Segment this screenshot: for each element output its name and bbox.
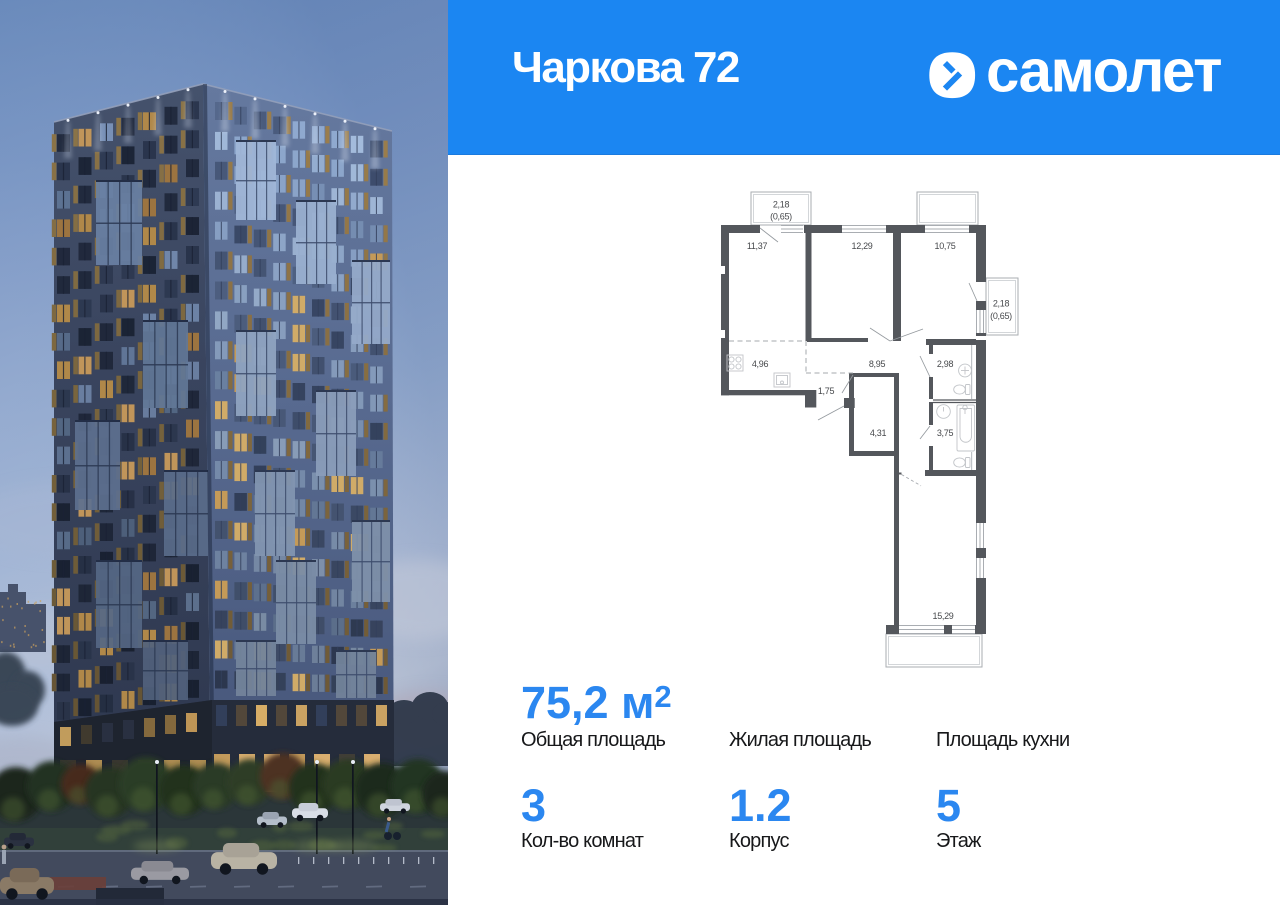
svg-text:11,37: 11,37 (747, 241, 768, 251)
svg-text:10,75: 10,75 (934, 241, 955, 251)
svg-text:15,29: 15,29 (932, 611, 953, 621)
svg-text:1,75: 1,75 (818, 386, 835, 396)
svg-text:3,75: 3,75 (937, 428, 954, 438)
svg-text:(0,65): (0,65) (990, 311, 1012, 321)
svg-text:8,95: 8,95 (869, 359, 886, 369)
svg-text:4,31: 4,31 (870, 428, 887, 438)
svg-text:самолет: самолет (986, 48, 1221, 105)
svg-text:2,18: 2,18 (993, 299, 1010, 309)
svg-text:(0,65): (0,65) (770, 212, 792, 222)
svg-text:12,29: 12,29 (851, 241, 872, 251)
svg-text:2,18: 2,18 (773, 200, 790, 210)
svg-text:2,98: 2,98 (937, 359, 954, 369)
svg-text:4,96: 4,96 (752, 359, 769, 369)
